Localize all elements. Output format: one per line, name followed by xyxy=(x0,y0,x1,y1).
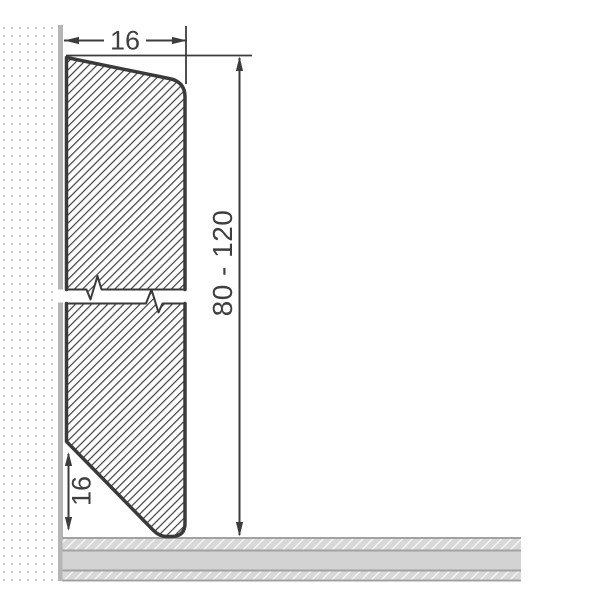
wall-texture xyxy=(0,25,58,581)
skirting-profile-diagram: 16 80 - 120 16 xyxy=(0,0,604,604)
height-dimension-label: 80 - 120 xyxy=(207,210,238,317)
floor-top-line xyxy=(63,537,522,539)
floor-separator-2 xyxy=(63,570,522,572)
arrow-right-icon xyxy=(172,37,187,44)
wall-surface-line-upper xyxy=(58,25,63,290)
floor-band-top-hatch xyxy=(63,539,522,550)
floor xyxy=(63,537,522,582)
arrow-down-icon xyxy=(65,517,72,531)
wall xyxy=(0,25,63,581)
arrow-left-icon xyxy=(64,37,79,44)
skirting-profile-upper xyxy=(67,58,186,300)
profile-upper-hatch-fill xyxy=(67,58,186,300)
arrow-up-icon xyxy=(236,57,243,72)
wall-surface-line-lower xyxy=(58,303,63,582)
technical-drawing-canvas: 16 80 - 120 16 xyxy=(0,0,604,604)
chamfer-dimension-label: 16 xyxy=(67,476,97,506)
floor-band-middle xyxy=(63,552,522,570)
floor-separator-1 xyxy=(63,550,522,552)
floor-bottom-line xyxy=(63,580,522,582)
arrow-down-icon xyxy=(236,522,243,537)
floor-band-bottom-hatch xyxy=(63,572,522,580)
width-dimension-label: 16 xyxy=(110,26,140,56)
arrow-up-icon xyxy=(65,452,72,466)
